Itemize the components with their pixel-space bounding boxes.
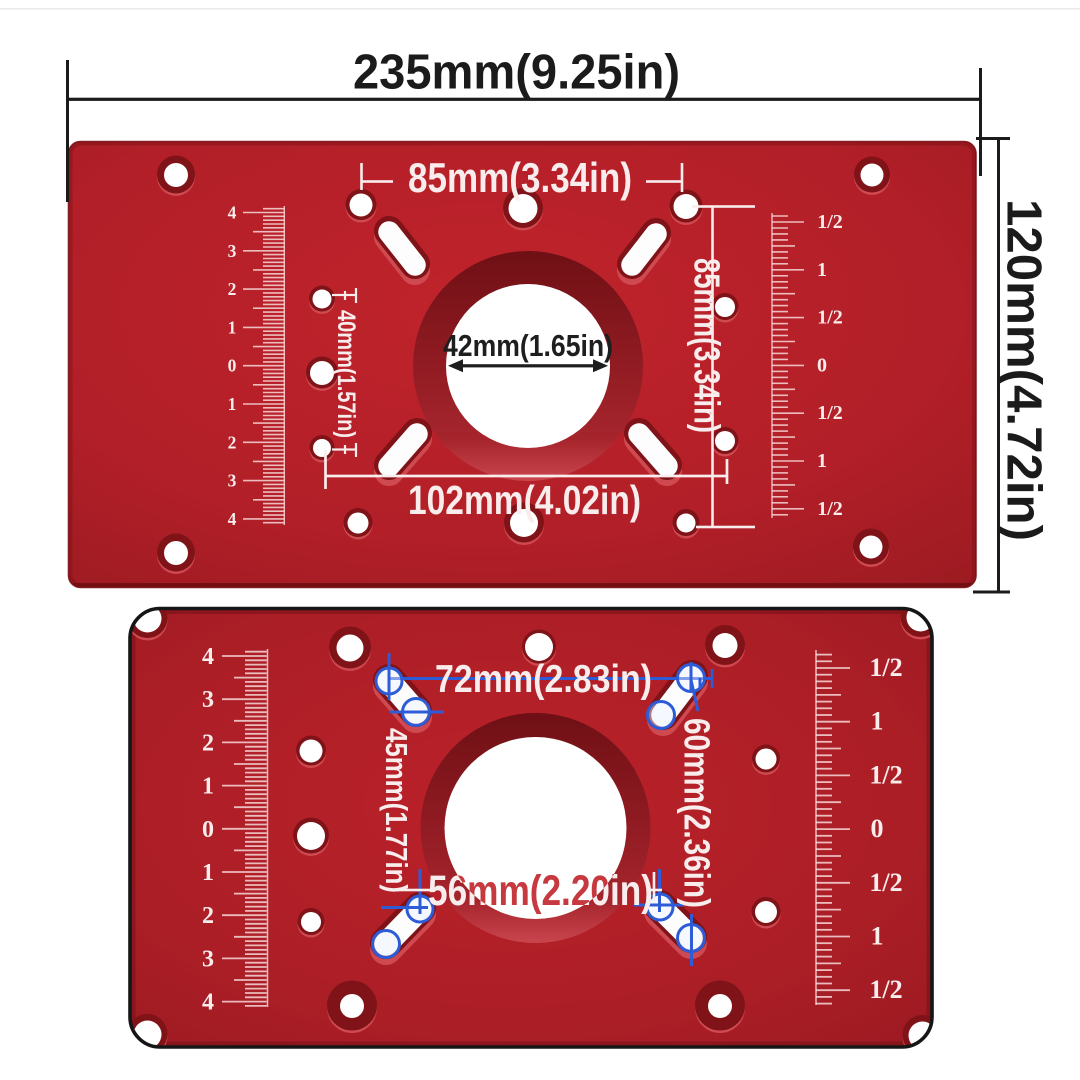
svg-text:4: 4	[228, 509, 237, 529]
svg-text:235mm(9.25in): 235mm(9.25in)	[353, 46, 680, 100]
svg-text:1/2: 1/2	[869, 975, 902, 1004]
svg-text:1: 1	[817, 259, 827, 281]
svg-text:0: 0	[871, 814, 884, 843]
svg-text:1/2: 1/2	[817, 402, 843, 424]
svg-text:102mm(4.02in): 102mm(4.02in)	[408, 477, 641, 523]
svg-text:2: 2	[228, 432, 237, 452]
svg-text:1: 1	[871, 922, 884, 951]
svg-text:1: 1	[202, 860, 214, 886]
svg-text:42mm(1.65in): 42mm(1.65in)	[443, 328, 613, 363]
svg-text:2: 2	[228, 279, 237, 299]
svg-text:1/2: 1/2	[869, 868, 902, 897]
svg-text:1/2: 1/2	[869, 653, 902, 682]
svg-text:3: 3	[228, 471, 237, 491]
svg-text:0: 0	[228, 356, 237, 376]
svg-text:1/2: 1/2	[817, 498, 843, 520]
svg-text:1: 1	[202, 774, 214, 800]
svg-text:40mm(1.57in): 40mm(1.57in)	[332, 310, 360, 438]
svg-text:2: 2	[202, 903, 214, 929]
svg-text:85mm(3.34in): 85mm(3.34in)	[686, 258, 727, 433]
svg-text:1: 1	[871, 707, 884, 736]
svg-text:4: 4	[202, 990, 214, 1016]
svg-text:1: 1	[817, 450, 827, 472]
svg-text:45mm(1.77in): 45mm(1.77in)	[379, 728, 414, 893]
svg-text:120mm(4.72in): 120mm(4.72in)	[996, 199, 1050, 541]
svg-text:0: 0	[202, 817, 214, 843]
svg-text:1/2: 1/2	[817, 211, 843, 233]
svg-text:1/2: 1/2	[869, 760, 902, 789]
svg-text:72mm(2.83in): 72mm(2.83in)	[435, 658, 652, 701]
svg-text:3: 3	[228, 241, 237, 261]
svg-text:1: 1	[228, 317, 237, 337]
svg-text:0: 0	[817, 354, 827, 376]
svg-text:60mm(2.36in): 60mm(2.36in)	[676, 718, 717, 908]
svg-text:3: 3	[202, 946, 214, 972]
svg-text:1: 1	[228, 394, 237, 414]
svg-text:4: 4	[228, 203, 237, 223]
svg-text:1/2: 1/2	[817, 307, 843, 329]
svg-text:3: 3	[202, 687, 214, 713]
svg-text:2: 2	[202, 730, 214, 756]
svg-text:85mm(3.34in): 85mm(3.34in)	[408, 154, 632, 201]
svg-text:4: 4	[202, 644, 214, 670]
